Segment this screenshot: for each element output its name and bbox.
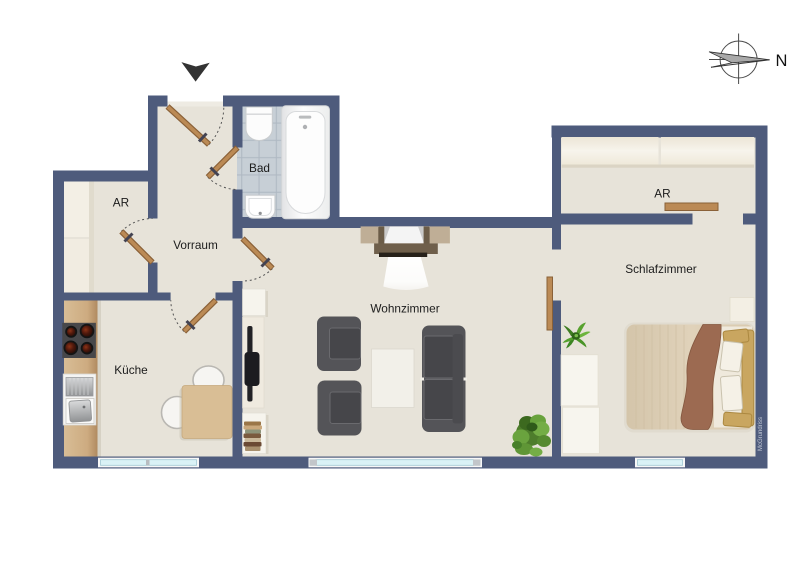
svg-text:Wohnzimmer: Wohnzimmer [370,302,439,316]
svg-text:McGrundriss: McGrundriss [758,417,764,451]
svg-text:AR: AR [113,196,129,210]
svg-text:Bad: Bad [249,161,270,175]
svg-text:Küche: Küche [114,363,148,377]
svg-text:AR: AR [654,187,670,201]
svg-text:Vorraum: Vorraum [173,238,218,252]
svg-text:N: N [776,52,788,70]
svg-text:Schlafzimmer: Schlafzimmer [625,262,697,276]
